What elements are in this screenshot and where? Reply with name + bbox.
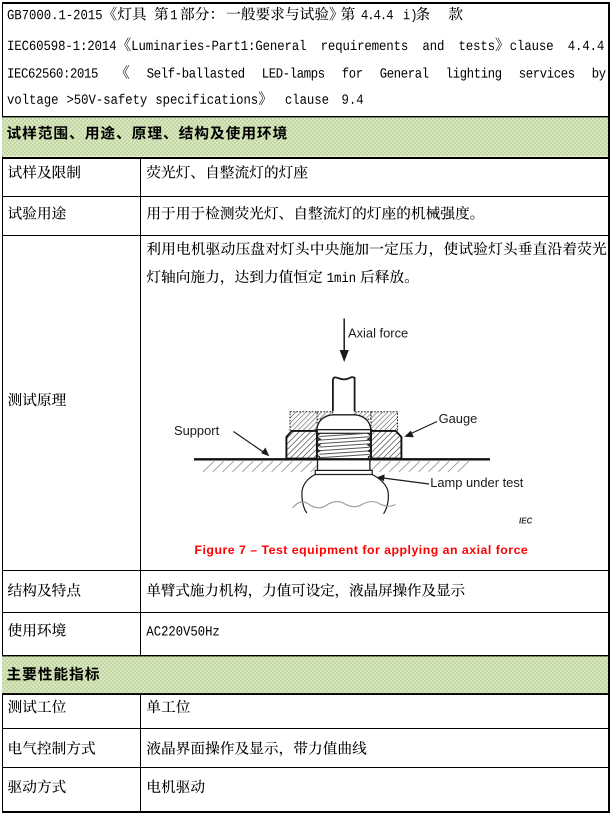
svg-text:Lamp under test: Lamp under test: [430, 475, 524, 490]
svg-text:Figure 7 – Test equipment for: Figure 7 – Test equipment for applying a…: [195, 543, 529, 557]
svg-text:Gauge: Gauge: [439, 411, 478, 426]
svg-text:Axial force: Axial force: [348, 325, 408, 340]
svg-text:Support: Support: [174, 423, 220, 438]
svg-text:IEC: IEC: [519, 517, 533, 526]
